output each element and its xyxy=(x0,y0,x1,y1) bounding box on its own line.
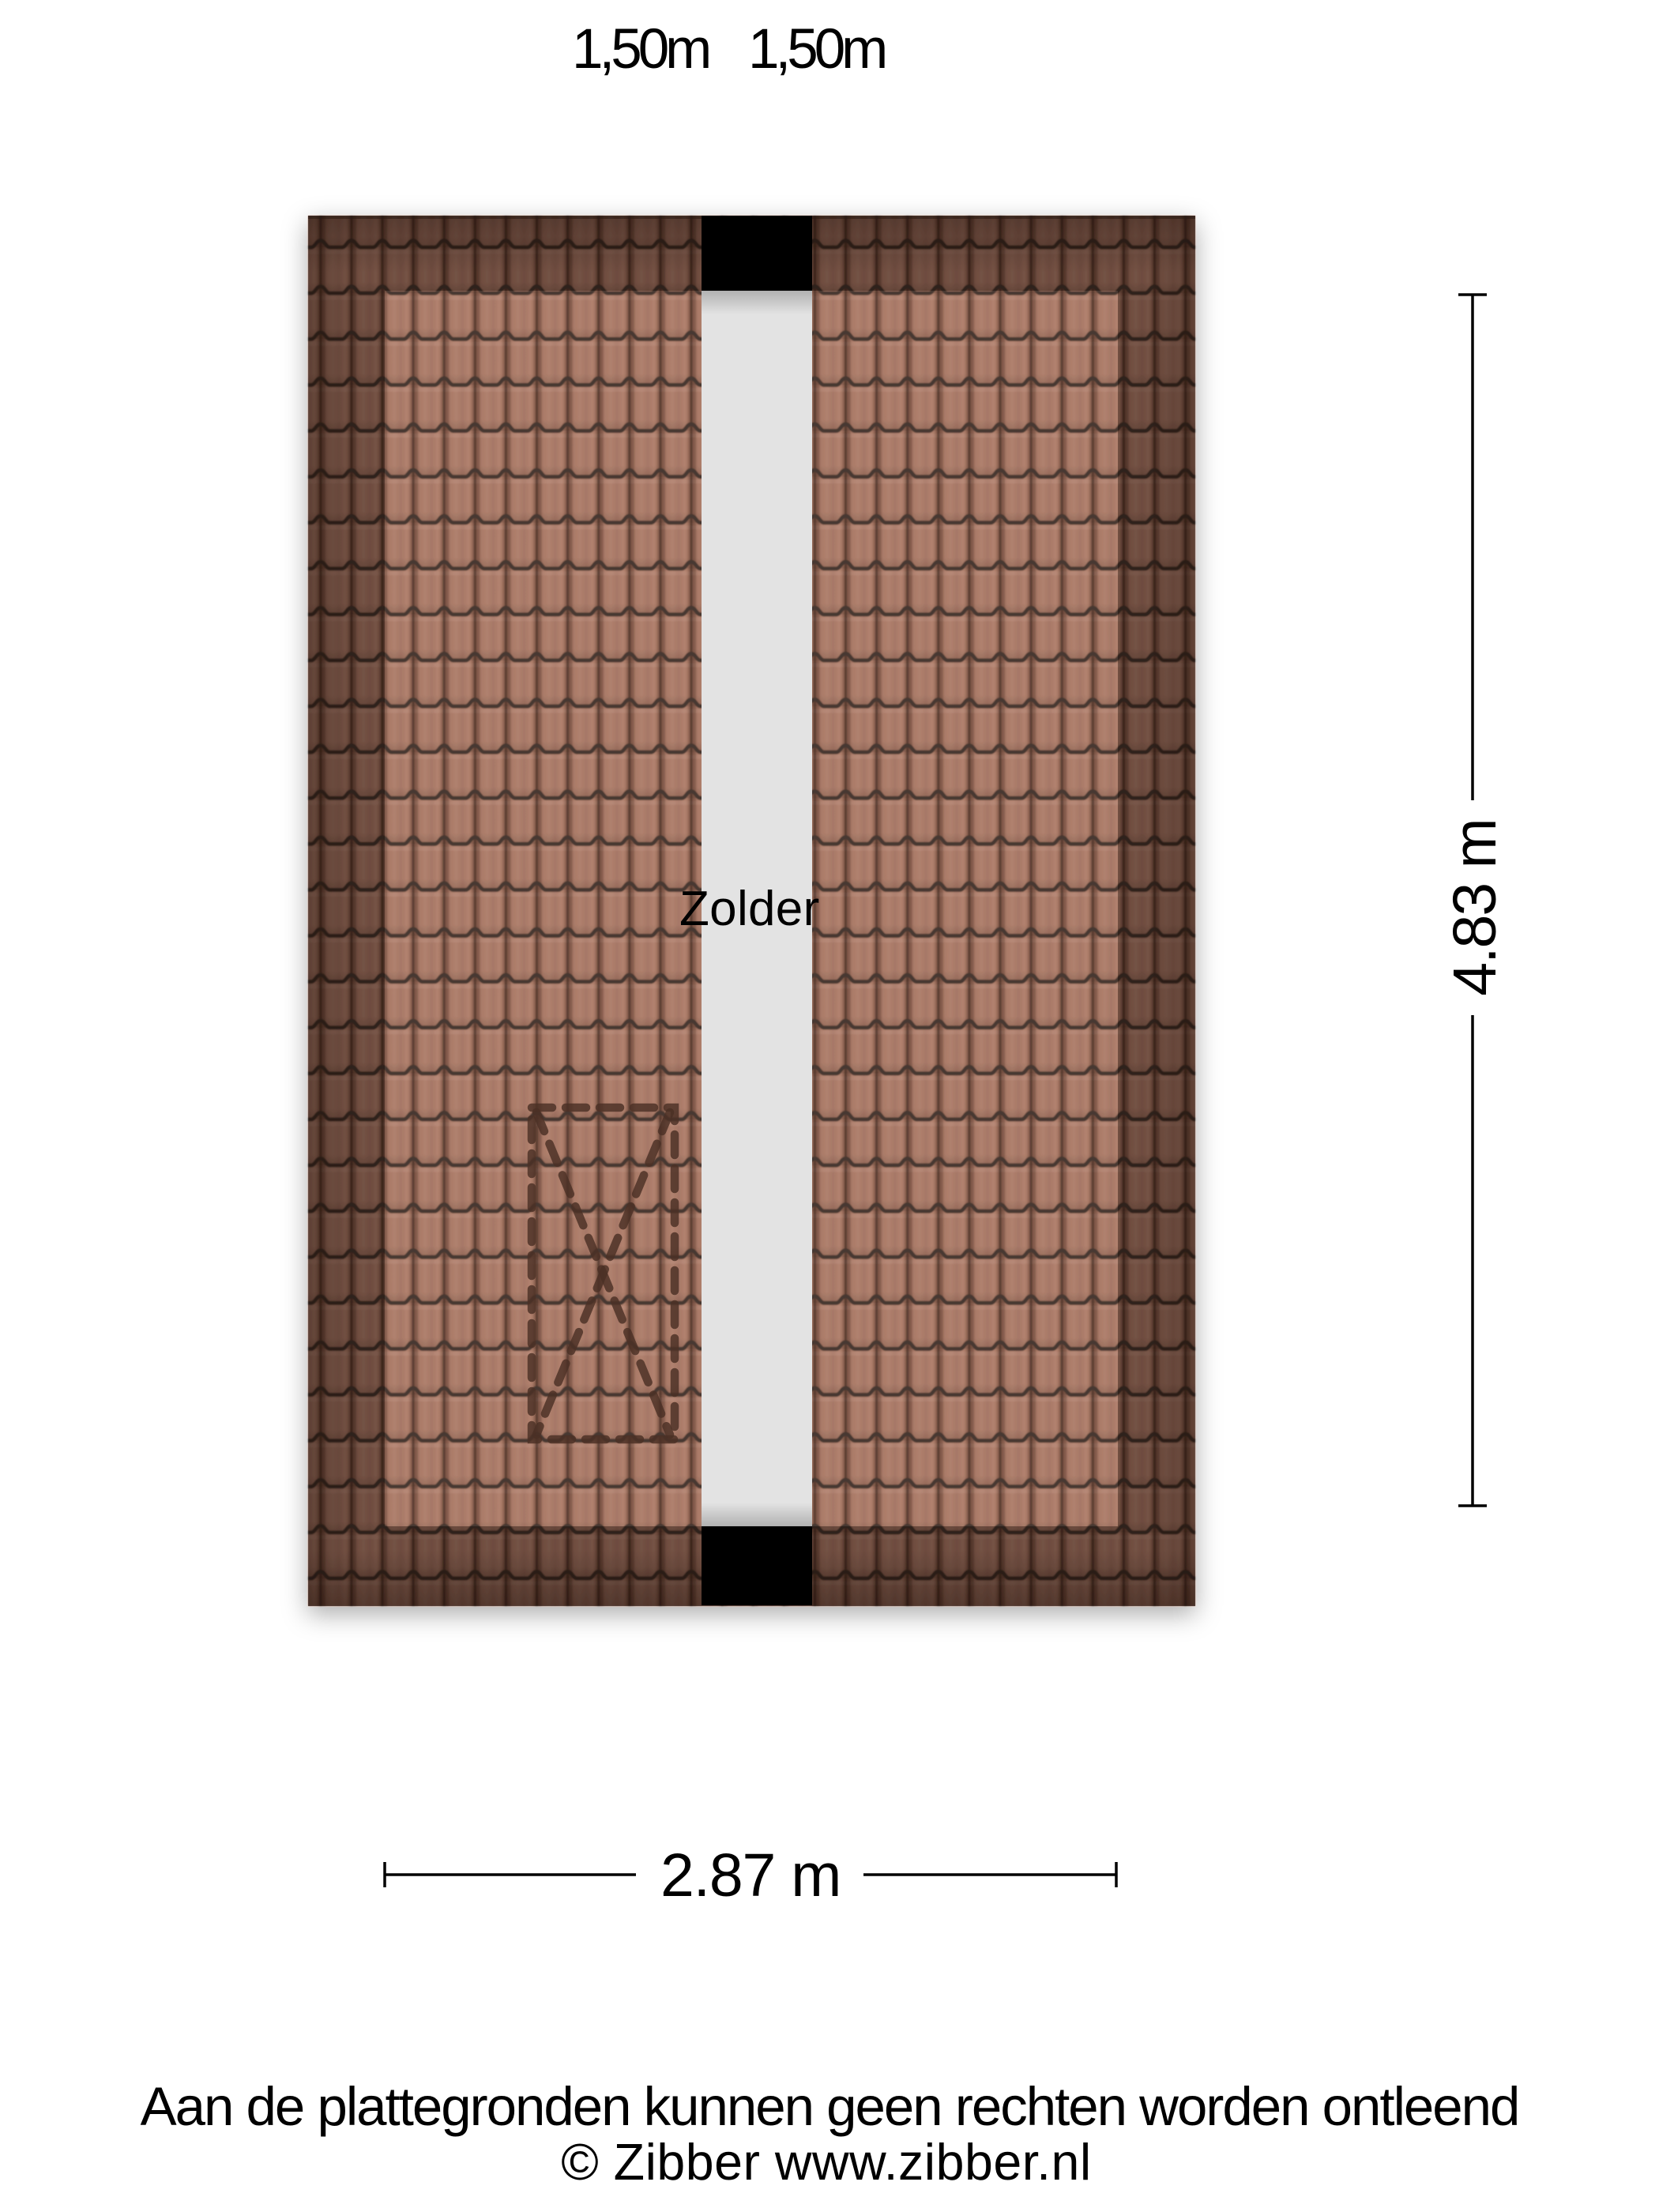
svg-text:1,50m: 1,50m xyxy=(748,18,885,81)
svg-text:© Zibber www.zibber.nl: © Zibber www.zibber.nl xyxy=(561,2134,1092,2191)
svg-text:2.87 m: 2.87 m xyxy=(660,1841,841,1909)
svg-text:4.83 m: 4.83 m xyxy=(1441,819,1509,995)
svg-text:Aan de plattegronden kunnen ge: Aan de plattegronden kunnen geen rechten… xyxy=(141,2076,1519,2137)
svg-text:1,50m: 1,50m xyxy=(572,18,709,81)
svg-text:Zolder: Zolder xyxy=(679,882,820,936)
